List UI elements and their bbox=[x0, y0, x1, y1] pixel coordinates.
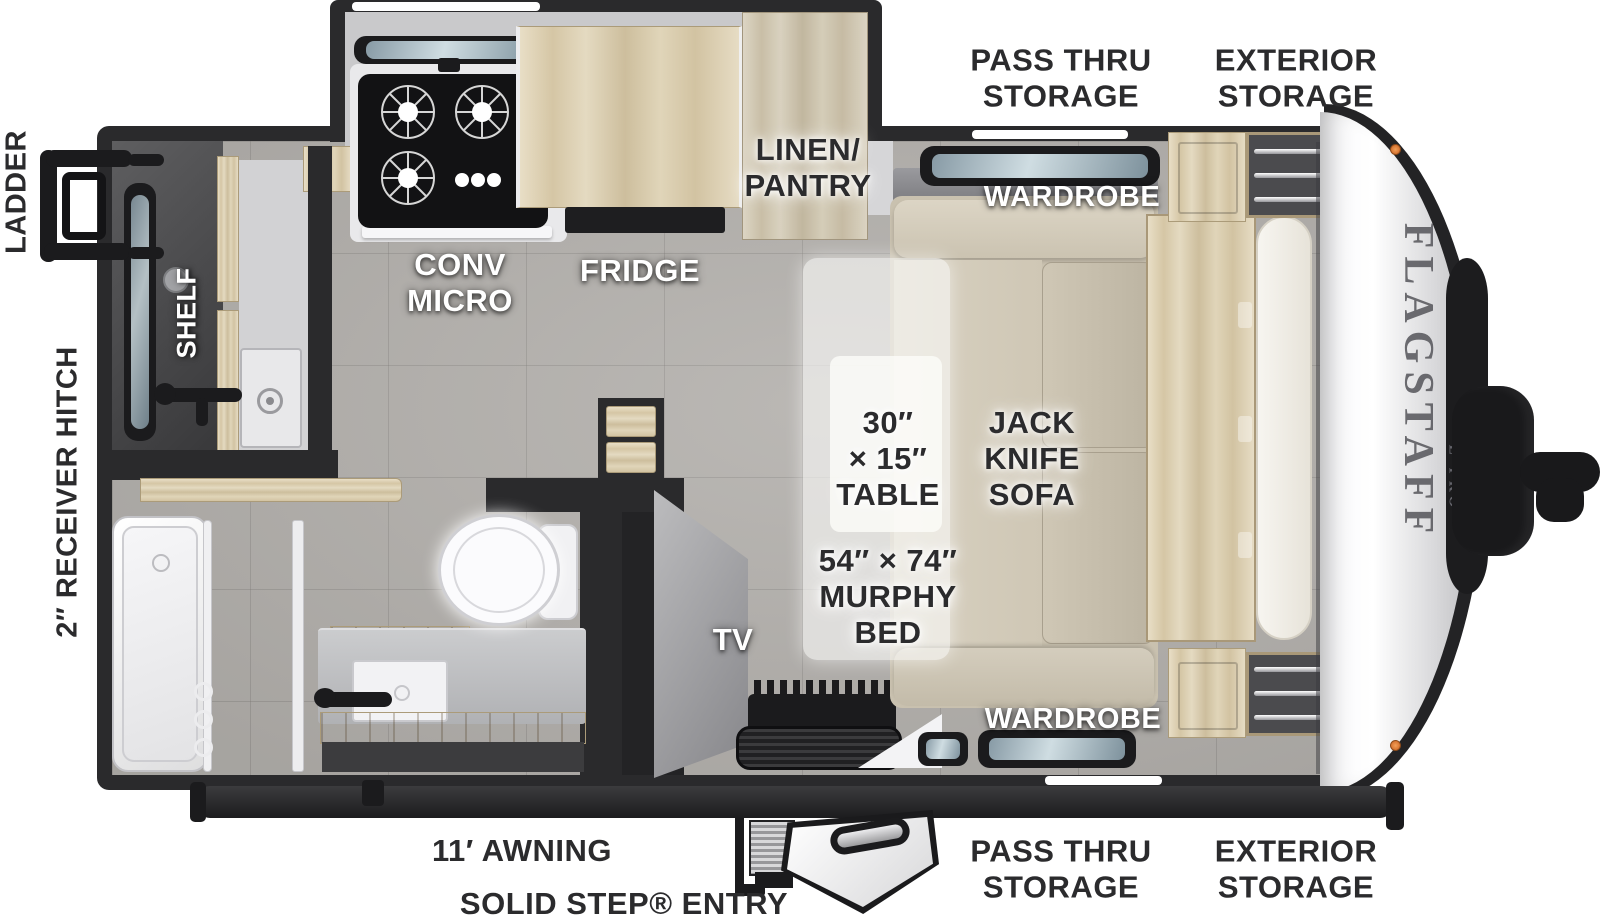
label-murphy-bed: 54″ × 74″ MURPHY BED bbox=[819, 543, 958, 651]
label-table: 30″ × 15″ TABLE bbox=[836, 405, 940, 513]
range-window-latch-icon bbox=[438, 58, 460, 72]
pantry-counter bbox=[516, 26, 742, 208]
range-window-glass bbox=[366, 41, 540, 59]
curtain-ring-icon bbox=[194, 738, 213, 757]
vanity-faucet-handle-icon bbox=[314, 688, 336, 708]
front-cabinet-top bbox=[1168, 132, 1246, 222]
vanity-base bbox=[322, 742, 584, 772]
bath-wall-right bbox=[580, 478, 622, 775]
label-linen-pantry: LINEN/ PANTRY bbox=[745, 132, 872, 204]
label-receiver-hitch: 2″ RECEIVER HITCH bbox=[51, 346, 84, 638]
exterior-window-strip bbox=[1045, 776, 1162, 785]
rear-faucet-stem-icon bbox=[196, 398, 208, 426]
label-fridge: FRIDGE bbox=[580, 253, 700, 289]
label-pass-thru-storage-top: PASS THRU STORAGE bbox=[970, 42, 1151, 113]
rear-cabinet-door-upper bbox=[217, 156, 239, 302]
awning-end-cap bbox=[190, 782, 206, 822]
label-jack-knife-sofa: JACK KNIFE SOFA bbox=[984, 405, 1080, 513]
rear-sink-drain-icon bbox=[257, 388, 283, 414]
curtain-ring-icon bbox=[194, 682, 213, 701]
murphy-bed-panel bbox=[1146, 214, 1256, 642]
window-bottom-small-frame bbox=[918, 732, 968, 766]
exterior-window-strip bbox=[972, 130, 1128, 139]
tub-drain-icon bbox=[152, 554, 170, 572]
floorplan-canvas: FLAGSTAFF E-PRO PASS THRU STORAGE EX bbox=[0, 0, 1600, 917]
label-solid-step-entry: SOLID STEP® ENTRY bbox=[460, 886, 788, 917]
marker-light-icon bbox=[1390, 740, 1401, 751]
label-shelf: SHELF bbox=[171, 267, 202, 358]
window-top-glass bbox=[932, 154, 1148, 178]
bath-partition bbox=[292, 520, 304, 772]
galley-end-cabinet bbox=[598, 398, 664, 480]
label-pass-thru-storage-bottom: PASS THRU STORAGE bbox=[970, 833, 1151, 904]
brand-model: FLAGSTAFF bbox=[1394, 223, 1442, 542]
label-wardrobe-top: WARDROBE bbox=[984, 181, 1160, 215]
fridge-vent bbox=[565, 207, 725, 233]
label-conv-micro: CONV MICRO bbox=[407, 247, 513, 319]
toilet-bowl bbox=[438, 514, 560, 626]
shower-curtain bbox=[203, 520, 212, 772]
pantry-cabinet bbox=[742, 12, 868, 240]
mattress bbox=[1256, 216, 1312, 640]
rear-faucet-handle-icon bbox=[154, 383, 176, 405]
label-wardrobe-bottom: WARDROBE bbox=[985, 703, 1161, 737]
pantry-side-strip bbox=[868, 141, 893, 215]
front-cabinet-bottom bbox=[1168, 648, 1246, 738]
window-bottom-glass bbox=[989, 738, 1125, 760]
label-exterior-storage-top: EXTERIOR STORAGE bbox=[1215, 42, 1377, 113]
awning-end-cap bbox=[1386, 782, 1404, 830]
vanity-drain-icon bbox=[394, 685, 410, 701]
bathtub bbox=[112, 516, 208, 772]
label-ladder: LADDER bbox=[0, 130, 33, 254]
label-exterior-storage-bottom: EXTERIOR STORAGE bbox=[1215, 833, 1377, 904]
vanity-shelf-slats bbox=[320, 712, 586, 744]
awning-bracket bbox=[362, 780, 384, 806]
rear-sink bbox=[240, 348, 302, 448]
label-awning: 11′ AWNING bbox=[432, 833, 612, 869]
hitch-coupler-knob bbox=[1536, 478, 1584, 522]
rear-divider-wall bbox=[308, 146, 332, 466]
marker-light-icon bbox=[1390, 144, 1401, 155]
curtain-ring-icon bbox=[194, 710, 213, 729]
divider-cabinet bbox=[112, 450, 338, 480]
rear-cabinet-door-lower bbox=[217, 310, 239, 452]
label-tv: TV bbox=[713, 622, 754, 658]
ladder-icon bbox=[40, 148, 170, 268]
divider-shelf bbox=[140, 478, 402, 502]
exterior-window-strip bbox=[352, 2, 540, 11]
window-top-frame bbox=[920, 146, 1160, 186]
